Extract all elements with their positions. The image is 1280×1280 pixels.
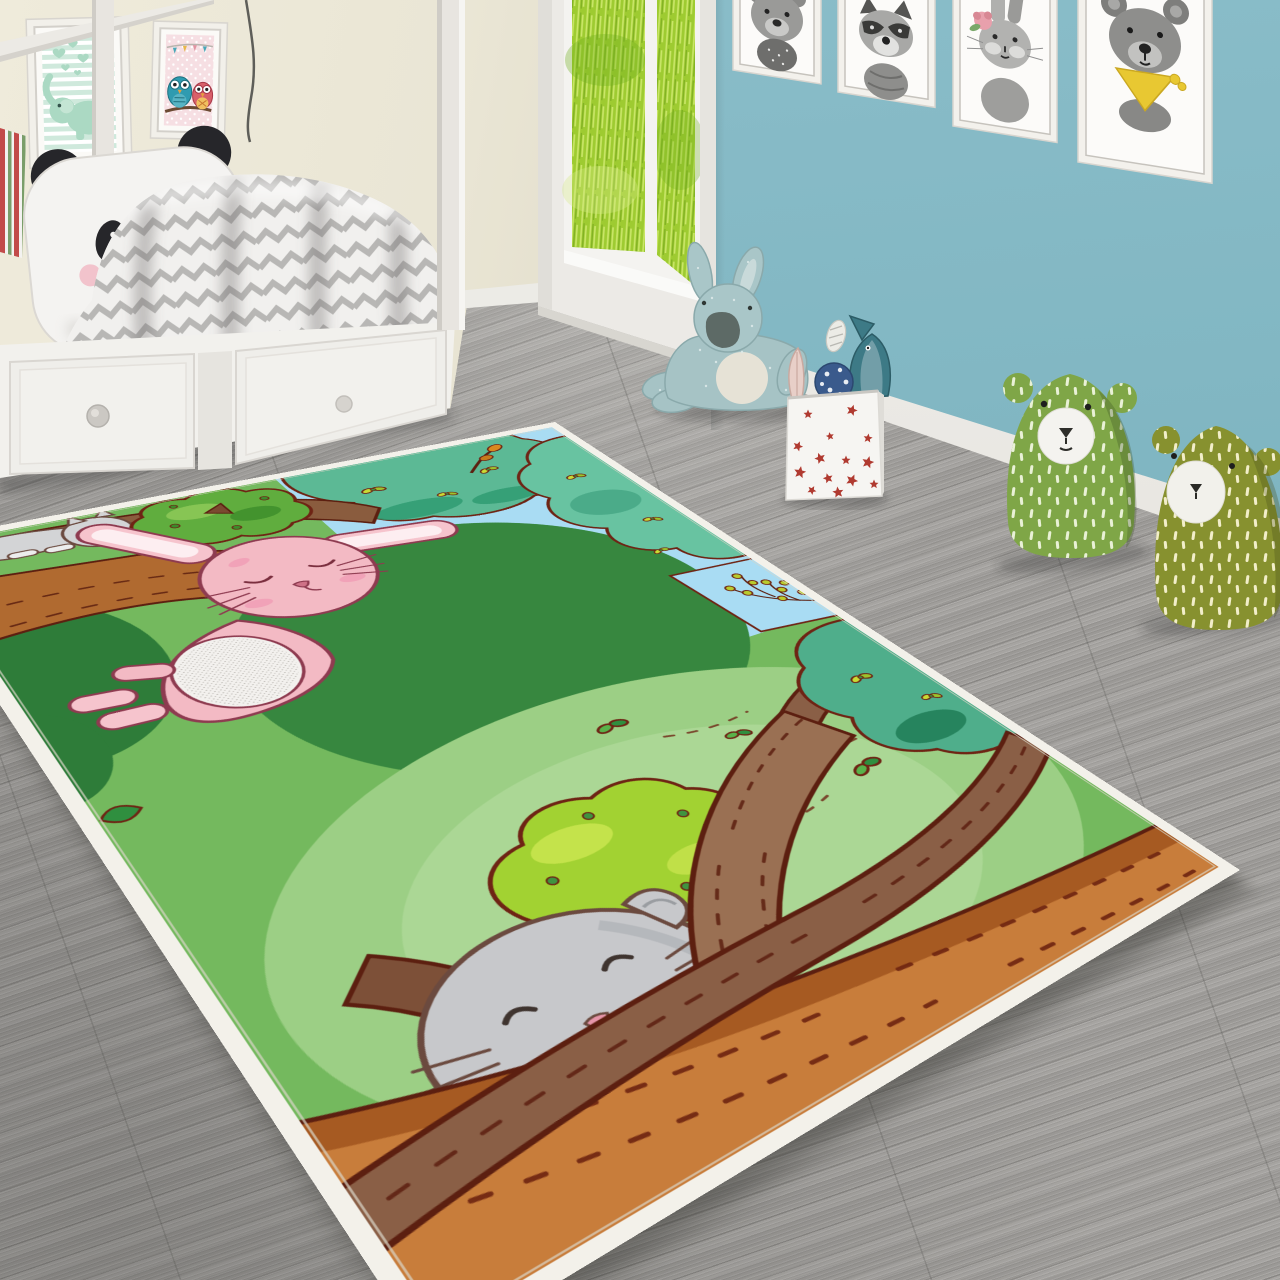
pouf-green [1003, 373, 1137, 558]
wall-cable [246, 0, 254, 142]
kids-room-scene [0, 0, 1280, 1280]
toy-box [775, 305, 900, 510]
portrait-rabbit-flower [953, 0, 1057, 142]
drawer-knob [87, 405, 109, 427]
pouf-olive [1152, 426, 1280, 630]
striped-pillow [0, 128, 26, 258]
drawer-knob-2 [336, 396, 352, 412]
feather-toy [789, 348, 804, 402]
bed [0, 0, 480, 500]
portrait-raccoon [838, 0, 935, 107]
portrait-bear-cub [733, 0, 821, 84]
portrait-bear-bandana [1078, 0, 1212, 183]
bear-poufs [990, 345, 1280, 645]
